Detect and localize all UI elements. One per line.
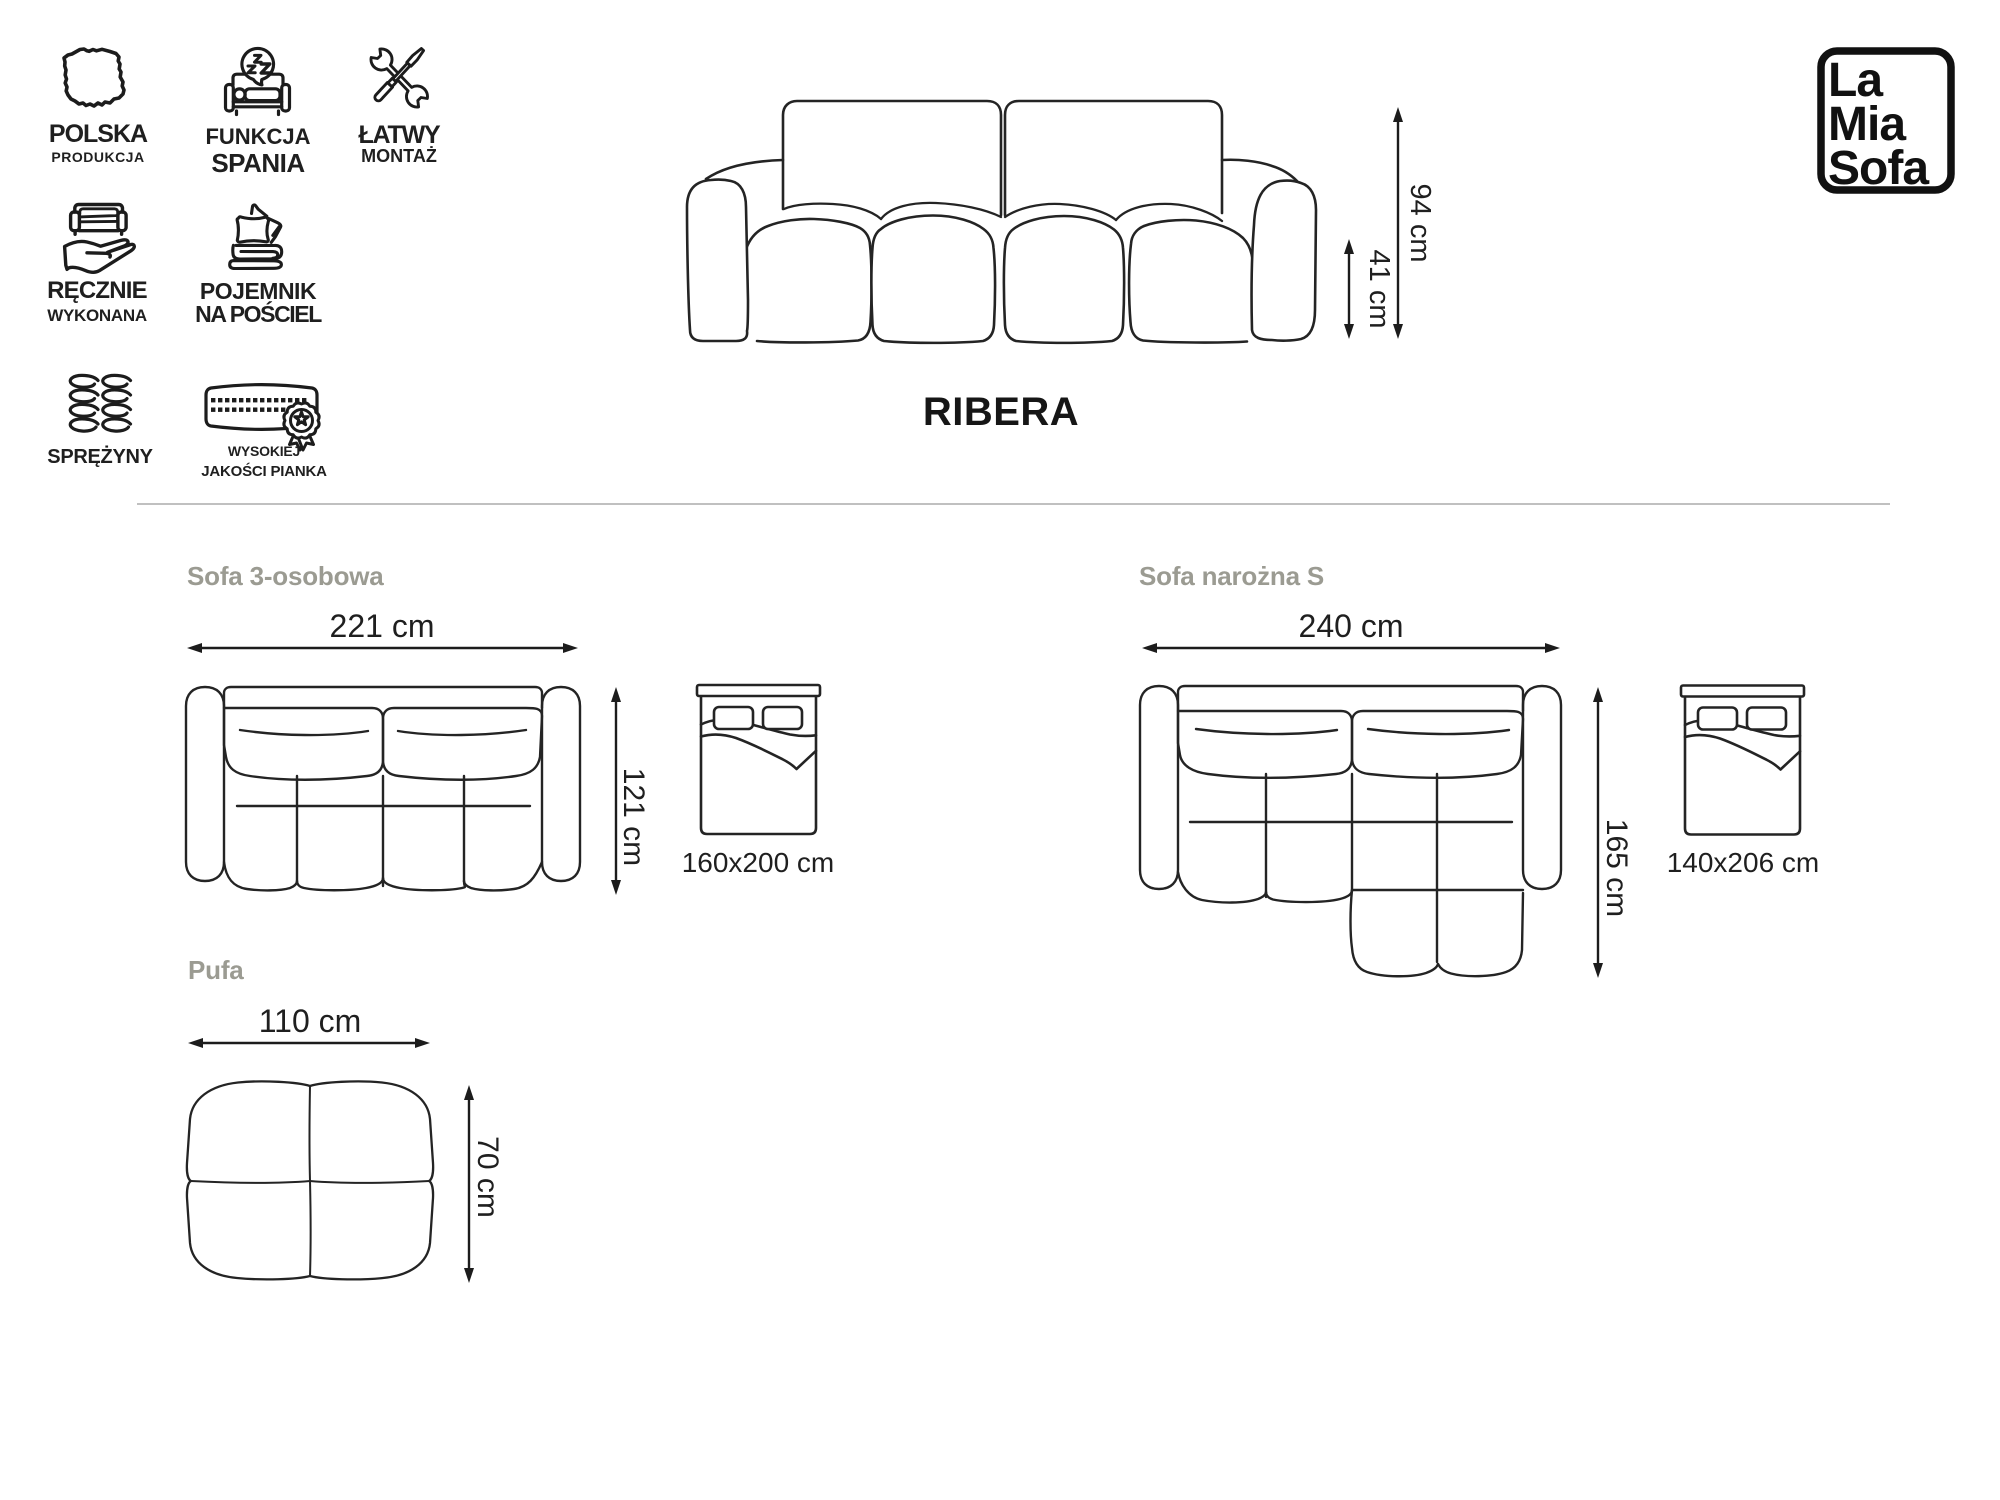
svg-text:94 cm: 94 cm — [1404, 184, 1436, 263]
svg-text:SPANIA: SPANIA — [211, 148, 305, 178]
svg-text:Sofa: Sofa — [1828, 142, 1929, 195]
svg-text:JAKOŚCI PIANKA: JAKOŚCI PIANKA — [201, 462, 327, 480]
svg-text:FUNKCJA: FUNKCJA — [205, 124, 310, 149]
svg-text:165 cm: 165 cm — [1600, 819, 1633, 917]
svg-text:70 cm: 70 cm — [471, 1136, 504, 1218]
svg-text:41 cm: 41 cm — [1363, 250, 1395, 329]
svg-text:RĘCZNIE: RĘCZNIE — [47, 277, 148, 304]
svg-text:140x206 cm: 140x206 cm — [1667, 847, 1820, 878]
svg-text:POLSKA: POLSKA — [49, 120, 148, 148]
svg-text:Sofa narożna S: Sofa narożna S — [1139, 561, 1324, 591]
svg-text:221 cm: 221 cm — [330, 608, 435, 644]
svg-text:110 cm: 110 cm — [259, 1003, 362, 1039]
svg-text:WYKONANA: WYKONANA — [47, 306, 147, 325]
svg-text:WYSOKIEJ: WYSOKIEJ — [228, 443, 300, 459]
svg-text:160x200 cm: 160x200 cm — [682, 847, 835, 878]
svg-text:PRODUKCJA: PRODUKCJA — [51, 149, 144, 165]
svg-text:RIBERA: RIBERA — [923, 390, 1079, 434]
svg-text:SPRĘŻYNY: SPRĘŻYNY — [47, 445, 153, 468]
svg-text:Sofa 3-osobowa: Sofa 3-osobowa — [187, 561, 384, 591]
svg-text:Pufa: Pufa — [188, 955, 244, 985]
svg-text:NA POŚCIEL: NA POŚCIEL — [195, 300, 322, 327]
svg-text:MONTAŻ: MONTAŻ — [361, 146, 437, 166]
svg-text:ŁATWY: ŁATWY — [358, 121, 441, 149]
svg-text:121 cm: 121 cm — [617, 768, 650, 866]
svg-text:240 cm: 240 cm — [1299, 608, 1404, 644]
